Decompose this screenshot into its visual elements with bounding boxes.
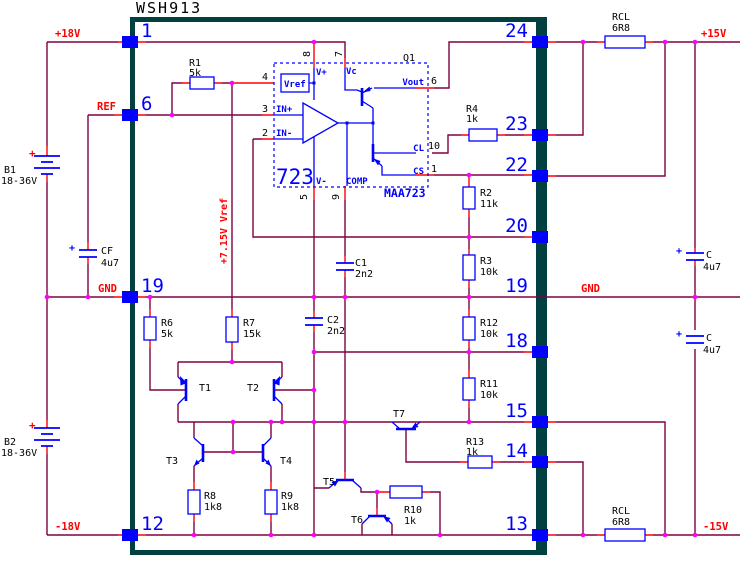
r7-ref: R7: [243, 318, 255, 329]
reg-pin4: 4: [262, 72, 268, 83]
label-minus18v: -18V: [55, 521, 81, 533]
comp-label: COMP: [346, 177, 368, 187]
r6-value: 5k: [161, 329, 173, 340]
c-top-plus: +: [676, 246, 682, 257]
resistor-r2: [463, 187, 475, 209]
wsh913-schematic: WSH913 723 MAA723 Q1 Vref V+ Vc IN+ IN- …: [0, 0, 747, 567]
resistor-rcl-top: [605, 36, 645, 48]
r1-value: 5k: [189, 68, 201, 79]
rcl-top-value: 6R8: [612, 23, 630, 34]
pad-18: [532, 346, 548, 358]
resistor-r12: [463, 317, 475, 340]
b2-value: 18-36V: [1, 448, 37, 459]
r12-ref: R12: [480, 318, 498, 329]
reg-pin1: 1: [431, 164, 437, 175]
rcl-top-ref: RCL: [612, 12, 630, 23]
r8-ref: R8: [204, 491, 216, 502]
reg-pin3: 3: [262, 104, 268, 115]
capacitor-c-top: [686, 253, 704, 260]
regulator-part-label: 723: [276, 165, 314, 189]
reg-pin10: 10: [428, 141, 440, 152]
r6-ref: R6: [161, 318, 173, 329]
r2-value: 11k: [480, 199, 498, 210]
r3-ref: R3: [480, 256, 492, 267]
pin-number-19-right: 19: [505, 275, 528, 297]
pad-12: [122, 529, 138, 541]
resistor-r11: [463, 378, 475, 400]
r8-value: 1k8: [204, 502, 222, 513]
rcl-bottom-value: 6R8: [612, 517, 630, 528]
module-title: WSH913: [136, 0, 202, 17]
opamp-symbol: [303, 103, 338, 143]
c1-value: 2n2: [355, 269, 373, 280]
label-gnd-right: GND: [581, 283, 600, 295]
pad-14: [532, 456, 548, 468]
capacitor-c-bottom: [686, 336, 704, 343]
regulator-723-block: 723 MAA723 Q1 Vref V+ Vc IN+ IN- V- COMP…: [262, 51, 440, 200]
t2-label: T2: [247, 383, 259, 394]
c-bottom-value: 4u7: [703, 345, 721, 356]
resistor-r4: [469, 129, 497, 141]
b1-ref: B1: [4, 165, 16, 176]
vref-label: Vref: [284, 80, 306, 90]
pin-number-24: 24: [505, 20, 528, 42]
q1-label: Q1: [403, 53, 415, 64]
c2-ref: C2: [327, 315, 339, 326]
c-bottom-ref: C: [706, 333, 712, 344]
r11-ref: R11: [480, 379, 498, 390]
pad-15: [532, 416, 548, 428]
pad-19-left: [122, 291, 138, 303]
transistor-bars: [186, 379, 416, 516]
b1-plus: +: [29, 147, 36, 160]
c-bottom-plus: +: [676, 329, 682, 340]
cf-value: 4u7: [101, 258, 119, 269]
vplus-label: V+: [316, 68, 327, 78]
r12-value: 10k: [480, 329, 498, 340]
vout-label: Vout: [402, 78, 424, 88]
battery-b2: [34, 428, 60, 446]
t4-label: T4: [280, 456, 292, 467]
c2-value: 2n2: [327, 326, 345, 337]
resistor-r9: [265, 490, 277, 514]
transistor-bars-723: [362, 88, 373, 162]
pad-20: [532, 231, 548, 243]
label-ref: REF: [97, 101, 116, 113]
cf-plus: +: [69, 243, 75, 254]
pad-13: [532, 529, 548, 541]
resistor-r6: [144, 317, 156, 340]
schematic-page: WSH913 723 MAA723 Q1 Vref V+ Vc IN+ IN- …: [0, 0, 747, 567]
pad-23: [532, 129, 548, 141]
pin-number-14: 14: [505, 440, 528, 462]
r13-value: 1k: [466, 447, 478, 458]
resistor-r7: [226, 317, 238, 342]
resistor-rcl-bottom: [605, 529, 645, 541]
pin-number-20: 20: [505, 215, 528, 237]
reg-pin9: 9: [331, 194, 342, 200]
c-top-value: 4u7: [703, 262, 721, 273]
reg-pin6: 6: [431, 76, 437, 87]
pad-6: [122, 109, 138, 121]
label-vref-rail: +7.15V Vref: [219, 198, 230, 264]
resistors: [144, 36, 645, 541]
r9-ref: R9: [281, 491, 293, 502]
r11-value: 10k: [480, 390, 498, 401]
pad-22: [532, 170, 548, 182]
cs-label: CS: [413, 167, 424, 177]
capacitor-c2: [305, 318, 323, 325]
pin-number-1: 1: [141, 20, 152, 42]
b2-plus: +: [29, 419, 36, 432]
pin-number-6: 6: [141, 93, 152, 115]
cf-ref: CF: [101, 246, 113, 257]
c-top-ref: C: [706, 250, 712, 261]
t6-label: T6: [351, 515, 363, 526]
r3-value: 10k: [480, 267, 498, 278]
label-minus15v: -15V: [703, 521, 729, 533]
resistor-r3: [463, 255, 475, 280]
resistor-r10: [390, 486, 422, 498]
in-minus-label: IN-: [276, 129, 292, 139]
in-plus-label: IN+: [276, 105, 293, 115]
capacitor-cf: [79, 250, 97, 257]
label-plus18v: +18V: [55, 28, 81, 40]
r7-value: 15k: [243, 329, 261, 340]
pad-24: [532, 36, 548, 48]
vminus-label: V-: [316, 177, 327, 187]
t1-label: T1: [199, 383, 211, 394]
reg-pin8: 8: [302, 51, 313, 57]
pin-number-23: 23: [505, 113, 528, 135]
pin-number-13: 13: [505, 513, 528, 535]
r9-value: 1k8: [281, 502, 299, 513]
t7-label: T7: [393, 409, 405, 420]
r4-value: 1k: [466, 114, 478, 125]
pin-number-15: 15: [505, 400, 528, 422]
b2-ref: B2: [4, 437, 16, 448]
label-gnd-left: GND: [98, 283, 117, 295]
reg-pin2: 2: [262, 128, 268, 139]
pin-number-12: 12: [141, 513, 164, 535]
r2-ref: R2: [480, 188, 492, 199]
b1-value: 18-36V: [1, 176, 37, 187]
capacitor-c1: [336, 263, 354, 270]
resistor-r8: [188, 490, 200, 514]
pin-number-22: 22: [505, 154, 528, 176]
pad-1: [122, 36, 138, 48]
r10-ref: R10: [404, 505, 422, 516]
battery-b1: [34, 156, 60, 174]
regulator-device-label: MAA723: [384, 186, 426, 200]
pin-number-19-left: 19: [141, 275, 164, 297]
r10-value: 1k: [404, 516, 416, 527]
t5-label: T5: [323, 477, 335, 488]
vc-label: Vc: [346, 67, 357, 77]
reg-pin7: 7: [334, 51, 345, 57]
reg-pin5: 5: [299, 194, 310, 200]
rcl-bottom-ref: RCL: [612, 506, 630, 517]
c1-ref: C1: [355, 258, 367, 269]
t3-label: T3: [166, 456, 178, 467]
label-plus15v: +15V: [701, 28, 727, 40]
cl-label: CL: [413, 144, 424, 154]
pin-number-18: 18: [505, 330, 528, 352]
